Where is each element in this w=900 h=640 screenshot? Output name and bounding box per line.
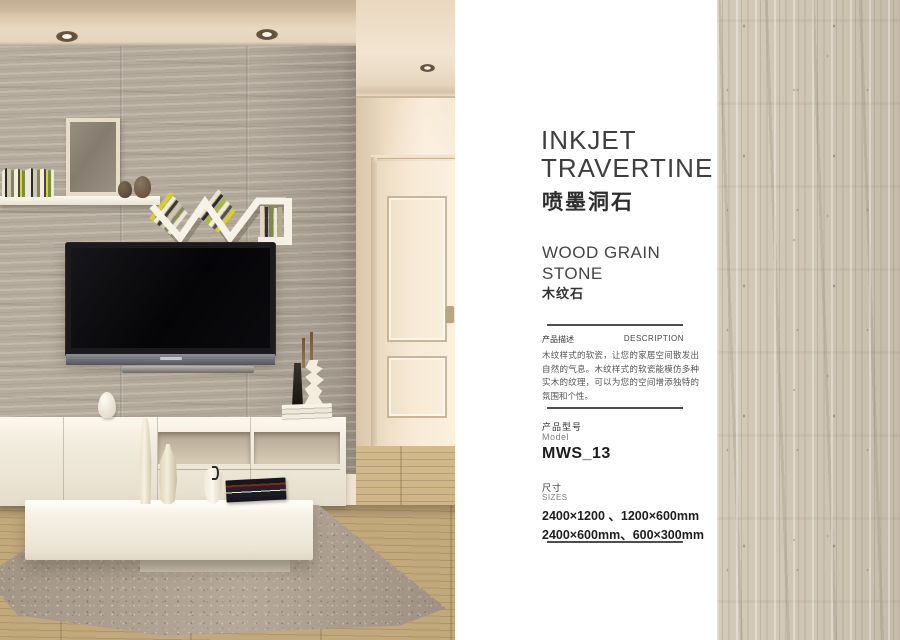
divider [547, 541, 683, 543]
tile-texture-swatch [717, 0, 900, 640]
book-stack [282, 403, 333, 422]
tv-logo [160, 357, 182, 360]
wall-frame [66, 118, 120, 196]
ceiling [0, 0, 356, 48]
door-panel-upper [387, 196, 447, 342]
ceiling-cove [356, 0, 455, 98]
description-label-cn: 产品描述 [542, 334, 574, 345]
model-value: MWS_13 [542, 445, 611, 463]
sizes-line1: 2400×1200 、1200×600mm [542, 505, 699, 524]
door-panel-lower [387, 356, 447, 418]
product-title-cn: 喷墨洞石 [542, 186, 634, 216]
cabinet-seam [157, 417, 158, 506]
sizes-label-en: SIZES [542, 493, 568, 502]
books [2, 168, 54, 197]
cabinet-seam [63, 417, 64, 506]
product-title-en-line1: INKJET [541, 126, 637, 154]
magazine-stack [225, 477, 286, 502]
description-label-en: DESCRIPTION [624, 334, 684, 345]
category-cn: 木纹石 [542, 283, 584, 302]
cabinet-seam [158, 469, 340, 470]
decor-vase [98, 392, 116, 418]
cabinet-open-shelf [254, 432, 340, 464]
candle [302, 338, 305, 368]
divider [547, 324, 683, 326]
tv-wall-mount [122, 366, 254, 373]
interior-photo [0, 0, 455, 640]
jug-handle [212, 466, 219, 480]
catalog-page: INKJET TRAVERTINE 喷墨洞石 WOOD GRAIN STONE … [0, 0, 900, 640]
zigzag-book-shelf [138, 150, 308, 250]
coffee-table [25, 500, 313, 560]
divider [547, 407, 683, 409]
decor-vase [118, 181, 132, 198]
recessed-light [256, 29, 278, 40]
recessed-light [56, 31, 78, 42]
description-header: 产品描述 DESCRIPTION [542, 334, 684, 345]
wall-shelf [0, 196, 160, 205]
tv-screen [71, 248, 270, 348]
model-label-en: Model [542, 432, 569, 442]
product-title-en-line2: TRAVERTINE [541, 154, 713, 182]
door-handle [446, 306, 454, 322]
recessed-light [420, 64, 435, 72]
product-info-panel: INKJET TRAVERTINE 喷墨洞石 WOOD GRAIN STONE … [455, 0, 717, 640]
category-en-line2: STONE [542, 263, 603, 284]
description-text: 木纹样式的软瓷，让您的家居空间散发出自然的气息。木纹样式的软瓷能模仿多种实木的纹… [542, 349, 699, 403]
door-frame-top [371, 155, 455, 159]
category-en-line1: WOOD GRAIN [542, 242, 660, 263]
